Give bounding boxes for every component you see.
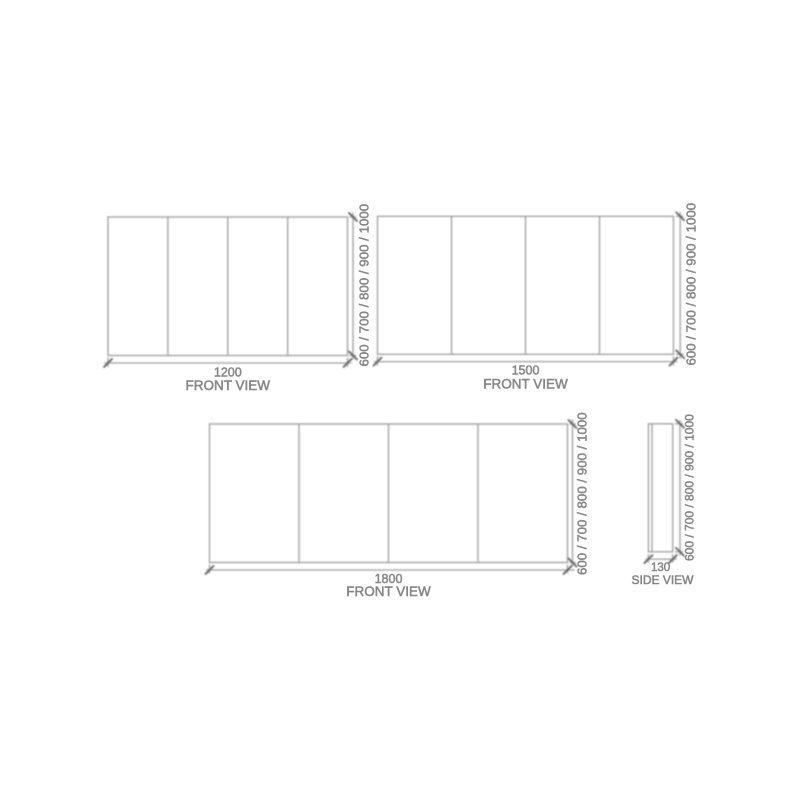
svg-text:FRONT VIEW: FRONT VIEW xyxy=(483,377,568,392)
svg-text:600 / 700 / 800 / 900 / 1000: 600 / 700 / 800 / 900 / 1000 xyxy=(357,204,372,367)
svg-text:FRONT VIEW: FRONT VIEW xyxy=(186,378,271,393)
svg-text:600 / 700 / 800 / 900 / 1000: 600 / 700 / 800 / 900 / 1000 xyxy=(575,412,590,575)
svg-text:600 / 700 / 800 / 900 / 1000: 600 / 700 / 800 / 900 / 1000 xyxy=(684,203,699,366)
svg-text:SIDE VIEW: SIDE VIEW xyxy=(631,573,694,587)
svg-text:FRONT VIEW: FRONT VIEW xyxy=(346,584,431,599)
svg-text:600 / 700 / 800 / 900 / 1000: 600 / 700 / 800 / 900 / 1000 xyxy=(683,414,697,561)
svg-text:1500: 1500 xyxy=(512,364,540,378)
